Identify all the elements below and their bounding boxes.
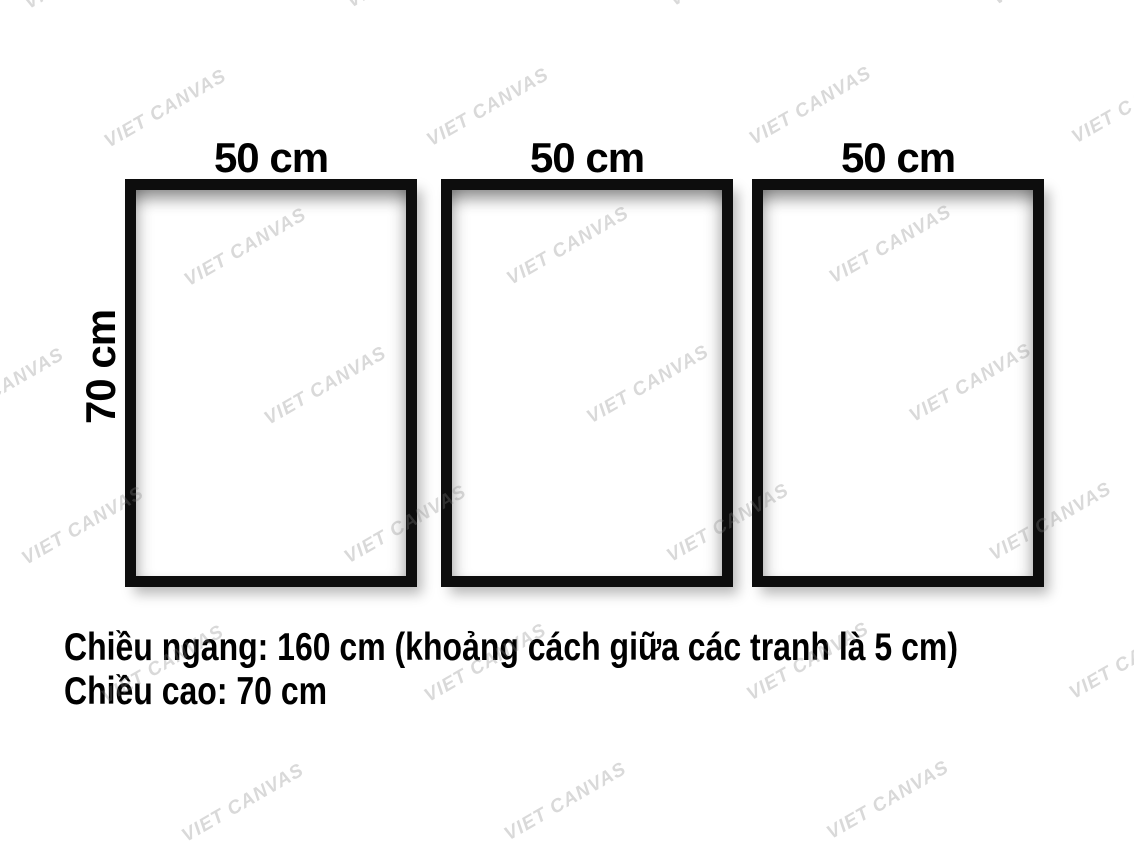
watermark-text: VIET CANVAS bbox=[1129, 799, 1134, 850]
watermark-text: VIET CANVAS bbox=[807, 800, 1129, 850]
watermark-text: VIET CANVAS bbox=[0, 0, 247, 110]
watermark-text: VIET CANVAS bbox=[0, 527, 2, 806]
frame-3-width-label: 50 cm bbox=[752, 138, 1044, 178]
frame-2-width-label: 50 cm bbox=[441, 138, 733, 178]
watermark-text: VIET CANVAS bbox=[1052, 104, 1134, 383]
watermark-text: VIET CANVAS bbox=[485, 801, 807, 850]
frame-panel-1 bbox=[125, 179, 417, 587]
dimension-diagram: VIET CANVASVIET CANVASVIET CANVASVIET CA… bbox=[0, 0, 1134, 850]
watermark-text: VIET CANVAS bbox=[0, 804, 162, 850]
frame-panel-2 bbox=[441, 179, 733, 587]
frame-height-label: 70 cm bbox=[77, 310, 125, 424]
note-vertical-size: Chiều cao: 70 cm bbox=[64, 670, 958, 714]
size-notes: Chiều ngang: 160 cm (khoảng cách giữa cá… bbox=[64, 626, 1134, 714]
note-horizontal-size: Chiều ngang: 160 cm (khoảng cách giữa cá… bbox=[64, 626, 958, 670]
watermark-text: VIET CANVAS bbox=[0, 0, 5, 250]
watermark-text: VIET CANVAS bbox=[247, 0, 569, 109]
frame-panel-3 bbox=[752, 179, 1044, 587]
watermark-text: VIET CANVAS bbox=[0, 110, 85, 389]
watermark-text: VIET CANVAS bbox=[569, 0, 891, 107]
watermark-text: VIET CANVAS bbox=[892, 0, 1134, 106]
frame-1-width-label: 50 cm bbox=[125, 138, 417, 178]
watermark-text: VIET CANVAS bbox=[162, 803, 484, 850]
